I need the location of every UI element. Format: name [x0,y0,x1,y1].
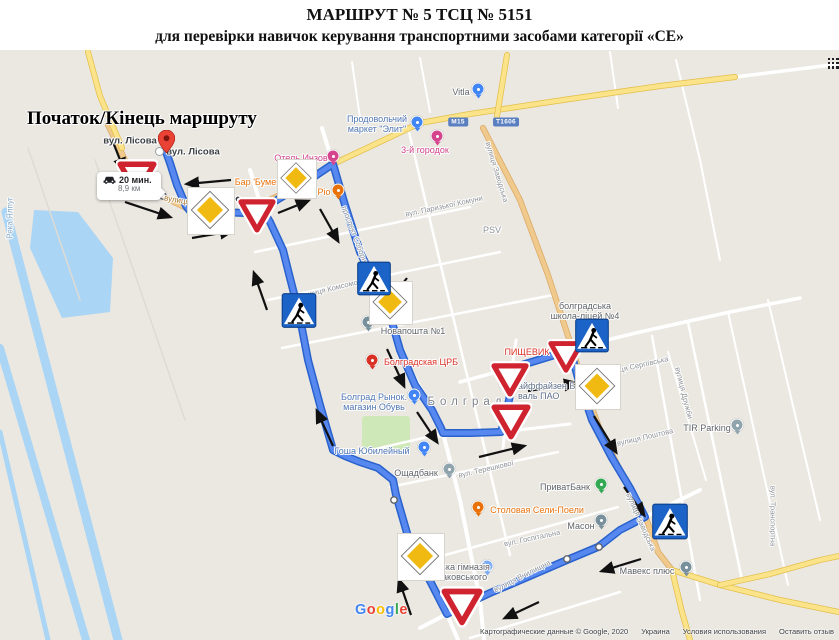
attribution-country[interactable]: Украина [641,627,670,636]
pin-tail [475,95,481,99]
google-logo-letter: g [386,602,395,618]
poi-pin-novaposhta[interactable] [362,316,375,329]
title-route-number: МАРШРУТ № 5 ТСЦ № 5151 [0,0,839,25]
poi-pin-bolgrad-crb[interactable] [366,354,379,367]
pin-dot [736,424,739,427]
pin-dot [477,88,480,91]
pin-dot [436,135,439,138]
google-logo-letter: G [355,602,367,618]
pin-tail [598,490,604,494]
pin-dot [423,446,426,449]
poi-pin-stolovaya[interactable] [472,501,485,514]
pin-tail [421,453,427,457]
pin-dot [448,468,451,471]
poi-pin-pio[interactable] [332,184,345,197]
attribution-feedback-link[interactable]: Оставить отзыв [779,627,834,636]
pin-tail [434,142,440,146]
poi-pin-privatbank[interactable] [595,478,608,491]
transit-stop-dot [235,196,241,202]
pin-tail [475,513,481,517]
map-background [0,50,839,640]
poi-pin-gymnasium[interactable] [481,560,494,573]
pin-tail [446,475,452,479]
pin-dot [685,566,688,569]
pin-tail [365,328,371,332]
pin-tail [734,431,740,435]
route-waypoint-dot [596,544,602,550]
attribution-terms-link[interactable]: Условия использования [683,627,766,636]
car-icon [103,175,116,185]
pin-tail [414,128,420,132]
pin-dot [337,189,340,192]
route-duration-infobox[interactable]: 20 мин. 8,9 км [97,172,161,200]
pin-dot [367,321,370,324]
pin-dot [413,394,416,397]
pin-tail [369,366,375,370]
google-logo-letter: o [376,602,385,618]
poi-pin-maveks-plus[interactable] [680,561,693,574]
pin-tail [330,162,336,166]
pin-dot [600,483,603,486]
route-waypoint-dot [564,556,570,562]
pin-dot [332,155,335,158]
pin-dot [371,359,374,362]
pin-dot [600,519,603,522]
map-canvas[interactable] [0,0,839,640]
poi-pin-gosha[interactable] [418,441,431,454]
poi-pin-gorodok-3[interactable] [431,130,444,143]
pin-dot [416,121,419,124]
poi-pin-market-elit[interactable] [411,116,424,129]
poi-pin-tir-parking[interactable] [731,419,744,432]
title-description: для перевірки навичок керування транспор… [0,25,839,46]
poi-pin-vitla[interactable] [472,83,485,96]
route-map-page: Початок/Кінець маршруту 20 мин. 8,9 км G… [0,0,839,640]
google-logo[interactable]: Google [355,602,408,618]
pin-dot [477,506,480,509]
pin-tail [683,573,689,577]
pin-tail [411,401,417,405]
route-waypoint-dot [391,497,397,503]
page-title: МАРШРУТ № 5 ТСЦ № 5151 для перевірки нав… [0,0,839,50]
pin-tail [484,572,490,576]
poi-pin-hotel-inzov[interactable] [327,150,340,163]
pin-dot [504,382,507,385]
poi-pin-oschadbank[interactable] [443,463,456,476]
grid-dots-icon[interactable] [828,58,839,69]
google-logo-letter: o [367,602,376,618]
poi-pin-raiffeisen[interactable] [499,377,512,390]
route-distance: 8,9 км [97,184,161,193]
poi-pin-rynok-obuv[interactable] [408,389,421,402]
pin-tail [598,526,604,530]
google-logo-letter: e [399,602,408,618]
pin-tail [335,196,341,200]
pin-dot [486,565,489,568]
pin-tail [502,389,508,393]
poi-pin-mason[interactable] [595,514,608,527]
